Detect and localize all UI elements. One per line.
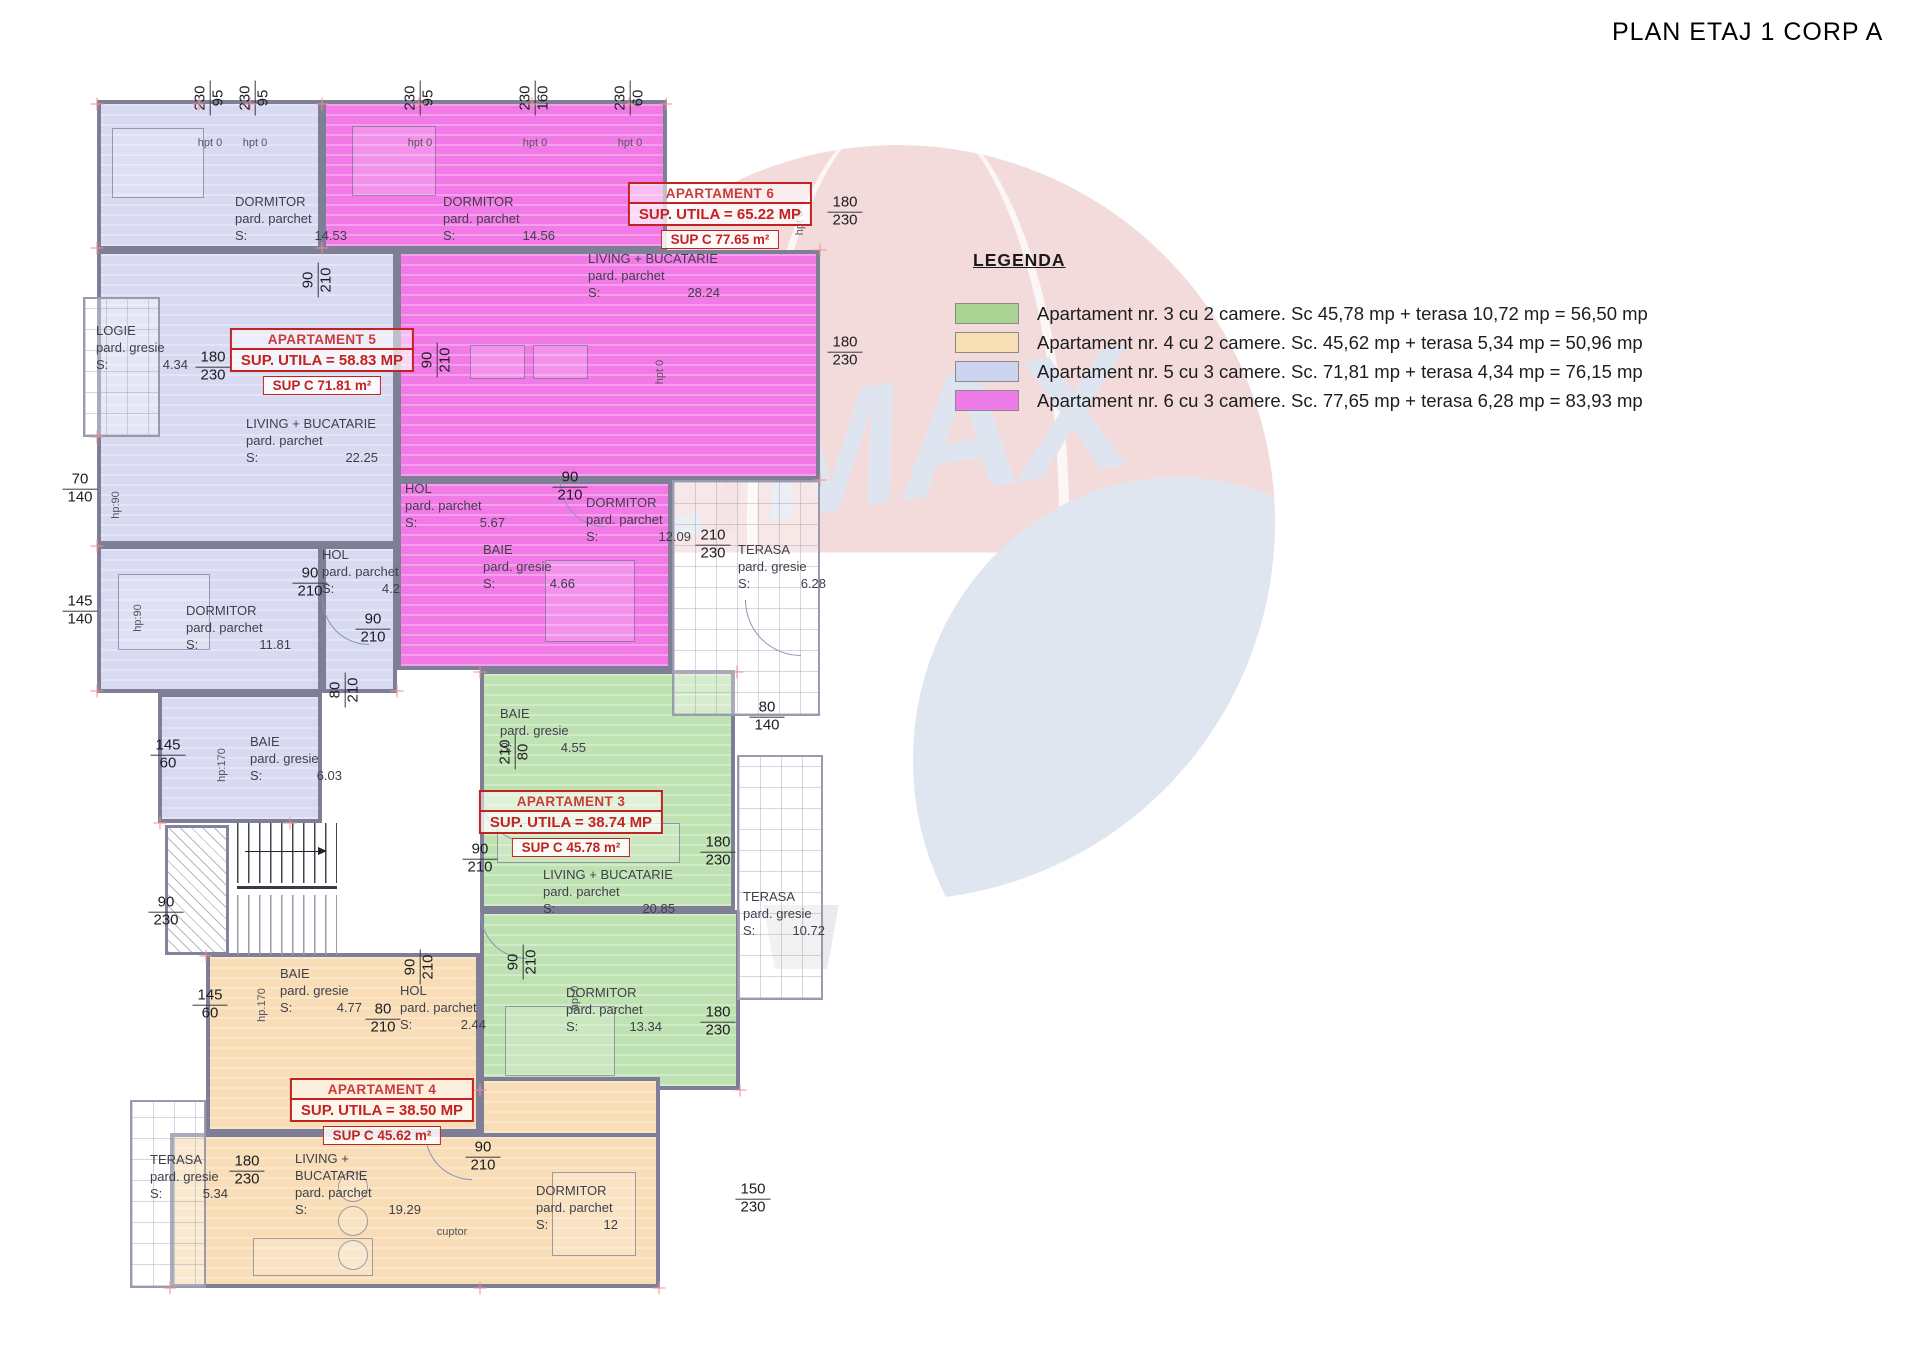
room-area-value: 10.72 [792,922,825,939]
dimension-top: 80 [749,700,784,717]
room-area-row: S:2.44 [400,1016,486,1033]
room-name: TERASA [150,1151,228,1168]
room-floor: pard. parchet [322,563,400,580]
wall-marker [316,98,329,111]
dimension-bottom: 210 [292,583,327,601]
apartment-sup-utila: SUP. UTILA = 58.83 MP [230,348,414,372]
apartment-name: APARTAMENT 4 [290,1078,474,1098]
dimension-label: 180230 [195,350,230,385]
dimension-bottom: 230 [735,1199,770,1217]
room-area-prefix: S: [400,1016,412,1033]
wall-marker [413,98,426,111]
room-name: DORMITOR [443,193,555,210]
room-area-prefix: S: [536,1216,548,1233]
dimension-label: 80140 [749,700,784,735]
room-area-prefix: S: [588,284,600,301]
room-name: DORMITOR [586,494,691,511]
dimension-top: 180 [195,350,230,367]
room-label-hol: HOLpard. parchetS:5.67 [405,480,505,531]
room-floor: pard. parchet [186,619,291,636]
room-area-prefix: S: [586,528,598,545]
wall-label: hp:170 [216,748,228,782]
wall-label: hpt 0 [408,137,432,149]
wall-label: cuptor [437,1226,468,1238]
apartment-name: APARTAMENT 6 [628,182,812,202]
room-name: HOL [405,480,505,497]
legend-row: Apartament nr. 6 cu 3 camere. Sc. 77,65 … [955,386,1648,415]
dimension-bottom: 210 [355,629,390,647]
dimension-label: 90230 [148,895,183,930]
room-label-terasa: TERASApard. gresieS:5.34 [150,1151,228,1202]
dimension-bottom: 210 [365,1019,400,1037]
room-name: DORMITOR [186,602,291,619]
apartment-label-apt5: APARTAMENT 5SUP. UTILA = 58.83 MPSUP C 7… [230,328,414,395]
room-area-row: S:4.34 [96,356,188,373]
wall-label: hp:90 [132,604,144,632]
room-name: HOL [322,546,400,563]
dimension-bottom: 210 [420,949,438,984]
room-floor: pard. parchet [295,1184,421,1201]
dimension-bottom: 230 [695,545,730,563]
room-name: BAIE [280,965,362,982]
room-area-prefix: S: [566,1018,578,1035]
dimension-top: 145 [62,594,97,611]
room-area-value: 14.56 [522,227,555,244]
wall-marker [474,666,487,679]
room-label-terasa: TERASApard. gresieS:10.72 [743,888,825,939]
wall-marker [474,1282,487,1295]
dimension-top: 210 [695,528,730,545]
wall-marker [91,242,104,255]
room-area-row: S:4.77 [280,999,362,1016]
room-floor: pard. gresie [250,750,342,767]
room-area-row: S:14.56 [443,227,555,244]
room-area-row: S:19.29 [295,1201,421,1218]
room-area-value: 6.28 [801,575,826,592]
dimension-label: 21080 [498,734,533,769]
dimension-top: 80 [365,1002,400,1019]
dimension-label: 180230 [827,335,862,370]
apartment-sup-c: SUP C 71.81 m² [263,376,382,395]
room-area-value: 4.77 [337,999,362,1016]
dimension-label: 90210 [403,949,438,984]
region-apt4-bedroom-ext [480,1077,660,1137]
room-floor: pard. parchet [246,432,378,449]
floor-plan-page: RE/MAX [0,0,1920,1349]
room-name: DORMITOR [235,193,347,210]
legend-row: Apartament nr. 4 cu 2 camere. Sc. 45,62 … [955,328,1648,357]
room-area-row: S:28.24 [588,284,720,301]
room-label-living-bucatarie: LIVING + BUCATARIEpard. parchetS:22.25 [246,415,378,466]
dimension-bottom: 140 [62,489,97,507]
room-area-row: S:5.67 [405,514,505,531]
room-area-prefix: S: [96,356,108,373]
bed [112,128,204,198]
wall-marker [814,474,827,487]
apartment-sup-utila: SUP. UTILA = 38.74 MP [479,810,663,834]
room-area-prefix: S: [483,575,495,592]
dimension-bottom: 230 [827,352,862,370]
room-floor: pard. gresie [96,339,188,356]
room-floor: pard. gresie [738,558,826,575]
dimension-top: 145 [192,988,227,1005]
page-title: PLAN ETAJ 1 CORP A [1612,18,1883,47]
wall-marker [91,540,104,553]
dimension-bottom: 210 [437,342,455,377]
room-area-prefix: S: [738,575,750,592]
dimension-top: 90 [355,612,390,629]
wall-marker [526,98,539,111]
room-floor: pard. parchet [586,511,691,528]
room-name: TERASA [738,541,826,558]
wall-label: hpt 0 [569,986,581,1010]
wall-marker [284,817,297,830]
kitchen-counter [470,345,525,379]
wall-marker [731,666,744,679]
room-area-prefix: S: [250,767,262,784]
wall-marker [91,431,104,444]
room-name: LIVING + BUCATARIE [543,866,675,883]
dimension-label: 90210 [301,262,336,297]
room-label-dormitor: DORMITORpard. parchetS:11.81 [186,602,291,653]
elevator-shaft [165,825,229,955]
dimension-bottom: 60 [150,755,185,773]
room-area-prefix: S: [543,900,555,917]
room-label-hol: HOLpard. parchetS:2.44 [400,982,486,1033]
dimension-top: 80 [328,672,345,707]
wall-label: hp:90 [110,491,122,519]
room-label-dormitor: DORMITORpard. parchetS:12.09 [586,494,691,545]
dimension-top: 90 [148,895,183,912]
dimension-top: 90 [552,470,587,487]
room-area-row: S:20.85 [543,900,675,917]
room-name: LIVING + BUCATARIE [246,415,378,432]
wall-label: hpt 0 [198,137,222,149]
dimension-top: 180 [700,835,735,852]
dimension-bottom: 230 [700,1022,735,1040]
room-area-value: 5.67 [480,514,505,531]
dimension-top: 90 [506,944,523,979]
wall-label: hpt 0 [523,137,547,149]
apartment-sup-c: SUP C 45.78 m² [512,838,631,857]
dimension-bottom: 230 [229,1171,264,1189]
dimension-bottom: 140 [62,611,97,629]
room-area-row: S:11.81 [186,636,291,653]
dimension-bottom: 210 [345,672,363,707]
wall-marker [814,244,827,257]
dimension-top: 90 [403,949,420,984]
legend-color-swatch [955,361,1019,382]
dimension-top: 180 [827,195,862,212]
dimension-bottom: 210 [465,1157,500,1175]
dimension-label: 180230 [229,1154,264,1189]
legend-item-text: Apartament nr. 3 cu 2 camere. Sc 45,78 m… [1037,303,1648,325]
apartment-label-apt6: APARTAMENT 6SUP. UTILA = 65.22 MPSUP C 7… [628,182,812,249]
room-name: LIVING + BUCATARIE [295,1150,421,1184]
kitchen-counter [533,345,588,379]
wall-marker [193,98,206,111]
dimension-bottom: 230 [700,852,735,870]
dimension-bottom: 95 [210,80,228,115]
wall-marker [164,1282,177,1295]
room-area-row: S:10.72 [743,922,825,939]
legend-heading: LEGENDA [973,250,1066,271]
room-area-prefix: S: [150,1185,162,1202]
dimension-top: 90 [420,342,437,377]
dimension-top: 70 [62,472,97,489]
region-terasa-apt6 [672,480,820,716]
dimension-bottom: 210 [523,944,541,979]
room-label-baie: BAIEpard. gresieS:4.77 [280,965,362,1016]
wall-marker [623,98,636,111]
dimension-top: 180 [827,335,862,352]
legend-item-text: Apartament nr. 4 cu 2 camere. Sc. 45,62 … [1037,332,1643,354]
dimension-label: 180230 [700,1005,735,1040]
stairs-direction-arrow [245,851,325,852]
room-area-value: 13.34 [629,1018,662,1035]
legend-color-swatch [955,303,1019,324]
room-area-row: S:5.34 [150,1185,228,1202]
dimension-bottom: 210 [552,487,587,505]
room-area-row: S:6.28 [738,575,826,592]
legend-item-text: Apartament nr. 5 cu 3 camere. Sc. 71,81 … [1037,361,1643,383]
room-label-dormitor: DORMITORpard. parchetS:12 [536,1182,618,1233]
dimension-label: 90210 [506,944,541,979]
room-label-hol: HOLpard. parchetS:4.2 [322,546,400,597]
apartment-name: APARTAMENT 3 [479,790,663,810]
apartment-label-apt3: APARTAMENT 3SUP. UTILA = 38.74 MPSUP C 4… [479,790,663,857]
room-area-row: S:12 [536,1216,618,1233]
dimension-top: 150 [735,1182,770,1199]
room-area-value: 11.81 [259,636,291,653]
legend-row: Apartament nr. 5 cu 3 camere. Sc. 71,81 … [955,357,1648,386]
room-area-value: 2.44 [461,1016,486,1033]
wall-marker [391,685,404,698]
wall-label: hpt 0 [654,360,666,384]
room-area-prefix: S: [235,227,247,244]
room-label-baie: BAIEpard. gresieS:4.66 [483,541,575,592]
room-name: BAIE [483,541,575,558]
room-floor: pard. parchet [443,210,555,227]
room-area-prefix: S: [443,227,455,244]
room-name: LIVING + BUCATARIE [588,250,720,267]
room-area-value: 12.09 [658,528,691,545]
wall-label: hp.170 [256,988,268,1022]
room-area-prefix: S: [280,999,292,1016]
dimension-label: 14560 [192,988,227,1023]
room-area-value: 5.34 [203,1185,228,1202]
dimension-label: 150230 [735,1182,770,1217]
dimension-label: 80210 [328,672,363,707]
wall-marker [154,817,167,830]
room-name: BAIE [500,705,586,722]
room-area-prefix: S: [246,449,258,466]
room-area-row: S:12.09 [586,528,691,545]
dimension-label: 90210 [552,470,587,505]
legend: Apartament nr. 3 cu 2 camere. Sc 45,78 m… [955,299,1648,415]
wall-marker [474,1084,487,1097]
dimension-top: 210 [498,734,515,769]
dimension-label: 210230 [695,528,730,563]
room-floor: pard. parchet [543,883,675,900]
room-label-terasa: TERASApard. gresieS:6.28 [738,541,826,592]
room-floor: pard. gresie [150,1168,228,1185]
apartment-name: APARTAMENT 5 [230,328,414,348]
table-seat [338,1240,368,1270]
apartment-sup-c: SUP C 77.65 m² [661,230,780,249]
dimension-top: 90 [292,566,327,583]
room-area-prefix: S: [405,514,417,531]
room-floor: pard. parchet [536,1199,618,1216]
room-floor: pard. parchet [405,497,505,514]
apartment-sup-utila: SUP. UTILA = 38.50 MP [290,1098,474,1122]
apartment-sup-utila: SUP. UTILA = 65.22 MP [628,202,812,226]
room-name: BAIE [250,733,342,750]
dimension-bottom: 230 [195,367,230,385]
room-area-value: 6.03 [317,767,342,784]
room-name: LOGIE [96,322,188,339]
dimension-bottom: 230 [148,912,183,930]
room-name: HOL [400,982,486,999]
dimension-label: 180230 [700,835,735,870]
room-area-value: 4.2 [382,580,400,597]
wall-marker [316,242,329,255]
wall-marker [91,98,104,111]
dimension-bottom: 60 [192,1005,227,1023]
room-area-value: 4.55 [561,739,586,756]
wall-marker [200,950,213,963]
room-area-value: 12 [604,1216,618,1233]
room-name: DORMITOR [536,1182,618,1199]
dimension-top: 145 [150,738,185,755]
dimension-label: 90210 [420,342,455,377]
room-area-row: S:4.66 [483,575,575,592]
room-label-dormitor: DORMITORpard. parchetS:14.53 [235,193,347,244]
dimension-bottom: 140 [749,717,784,735]
wall-marker [660,98,673,111]
dimension-label: 145140 [62,594,97,629]
room-area-value: 4.34 [163,356,188,373]
dimension-label: 90210 [292,566,327,601]
wall-marker [91,685,104,698]
dimension-bottom: 230 [827,212,862,230]
dimension-label: 180230 [827,195,862,230]
wall-label: hpt 0 [243,137,267,149]
dimension-label: 14560 [150,738,185,773]
apartment-label-apt4: APARTAMENT 4SUP. UTILA = 38.50 MPSUP C 4… [290,1078,474,1145]
room-area-value: 19.29 [388,1201,421,1218]
dimension-bottom: 210 [462,859,497,877]
dimension-bottom: 80 [515,734,533,769]
room-area-value: 20.85 [642,900,675,917]
stairs-flight-down [237,895,337,955]
room-label-logie: LOGIEpard. gresieS:4.34 [96,322,188,373]
dimension-top: 180 [229,1154,264,1171]
wall-marker [734,1084,747,1097]
dimension-bottom: 95 [255,80,273,115]
wall-marker [653,1282,666,1295]
room-floor: pard. parchet [400,999,486,1016]
region-terasa-apt3 [737,755,823,1000]
room-name: TERASA [743,888,825,905]
room-label-dormitor: DORMITORpard. parchetS:14.56 [443,193,555,244]
room-area-value: 28.24 [687,284,720,301]
dimension-bottom: 210 [318,262,336,297]
legend-item-text: Apartament nr. 6 cu 3 camere. Sc. 77,65 … [1037,390,1643,412]
room-floor: pard. gresie [743,905,825,922]
room-floor: pard. gresie [280,982,362,999]
wall-marker [244,98,257,111]
dimension-top: 90 [301,262,318,297]
legend-row: Apartament nr. 3 cu 2 camere. Sc 45,78 m… [955,299,1648,328]
apartment-sup-c: SUP C 45.62 m² [323,1126,442,1145]
room-area-value: 22.25 [345,449,378,466]
stairs-rail [237,886,337,889]
legend-color-swatch [955,332,1019,353]
room-area-prefix: S: [186,636,198,653]
room-area-row: S:6.03 [250,767,342,784]
dimension-top: 180 [700,1005,735,1022]
dimension-label: 70140 [62,472,97,507]
room-label-living-bucatarie: LIVING + BUCATARIEpard. parchetS:20.85 [543,866,675,917]
room-area-row: S:4.2 [322,580,400,597]
room-label-baie: BAIEpard. gresieS:6.03 [250,733,342,784]
room-label-living-bucatarie: LIVING + BUCATARIEpard. parchetS:28.24 [588,250,720,301]
room-floor: pard. parchet [235,210,347,227]
wall-label: hpt 0 [618,137,642,149]
room-area-row: S:13.34 [566,1018,662,1035]
room-area-row: S:14.53 [235,227,347,244]
dimension-label: 80210 [365,1002,400,1037]
legend-color-swatch [955,390,1019,411]
room-area-prefix: S: [295,1201,307,1218]
room-area-prefix: S: [743,922,755,939]
room-label-living-bucatarie: LIVING + BUCATARIEpard. parchetS:19.29 [295,1150,421,1219]
room-area-row: S:22.25 [246,449,378,466]
room-area-value: 4.66 [550,575,575,592]
room-floor: pard. gresie [483,558,575,575]
dimension-label: 90210 [355,612,390,647]
room-floor: pard. parchet [588,267,720,284]
